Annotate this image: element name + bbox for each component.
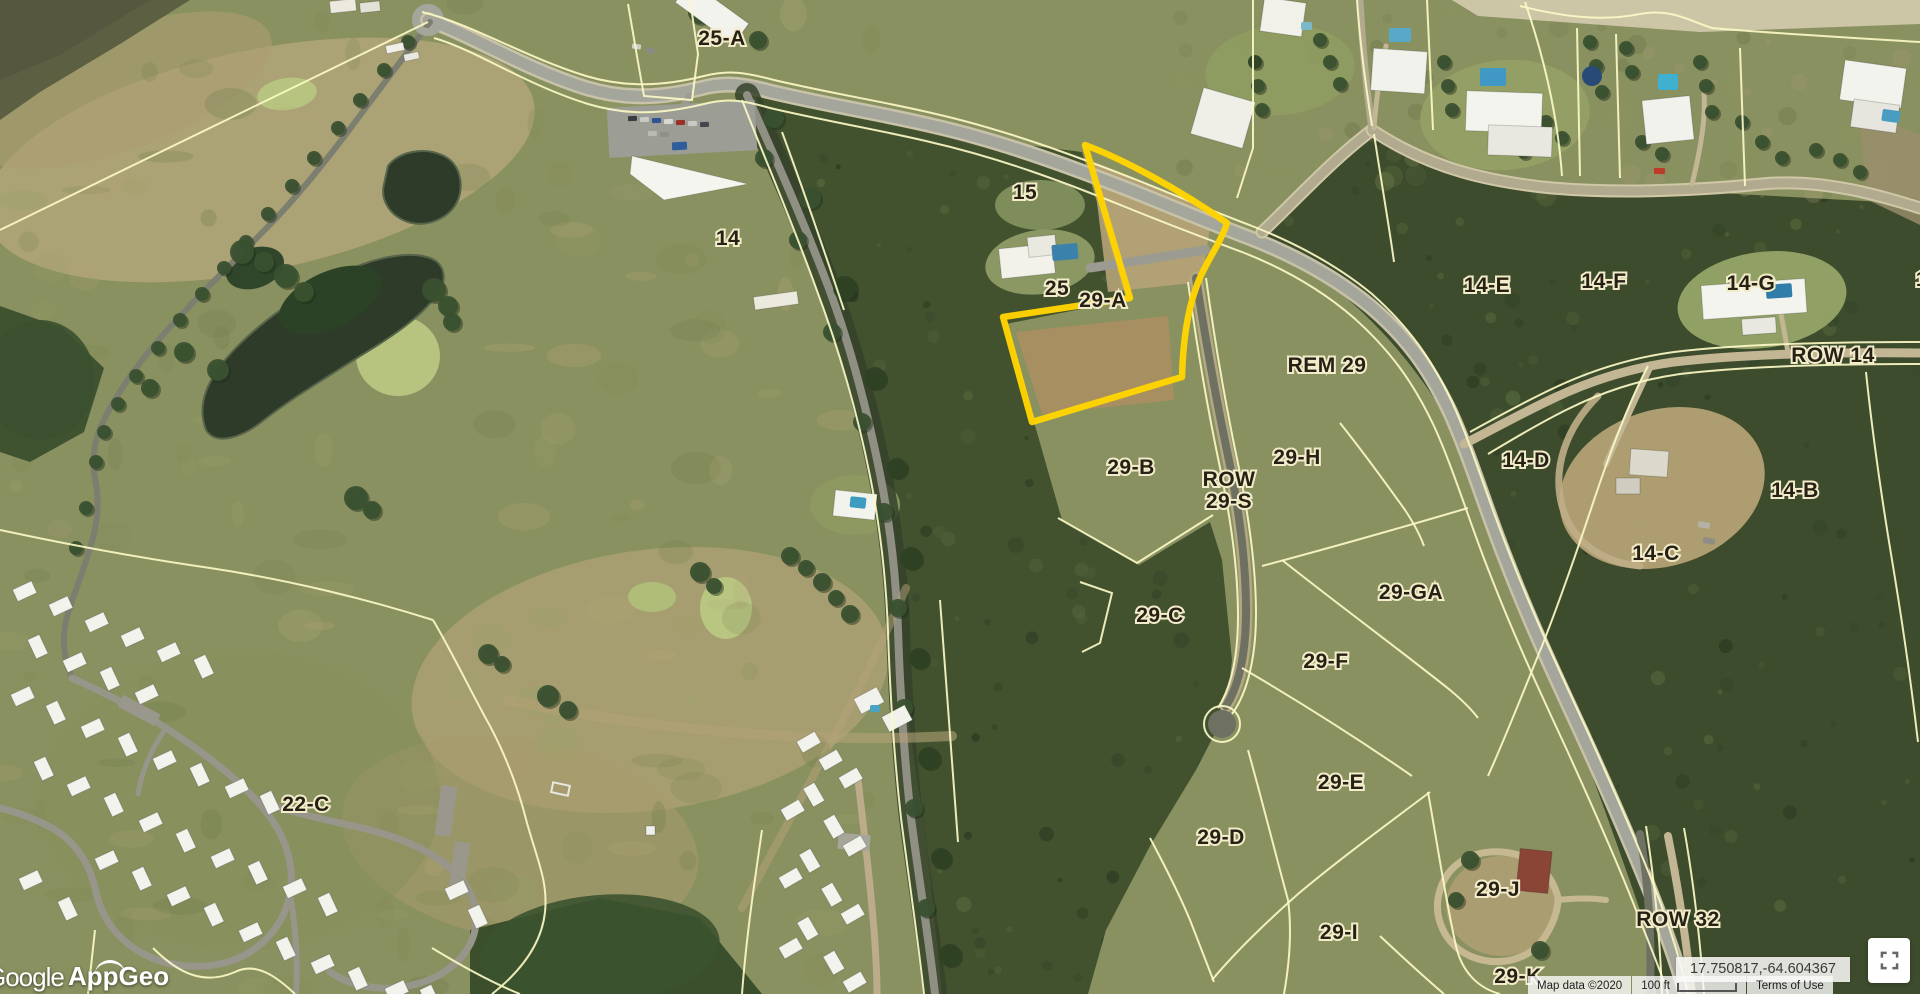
parcel-label: 14-C: [1632, 542, 1680, 565]
attribution-bar: Map data ©2020 100 ft Terms of Use: [1528, 976, 1833, 994]
parcel-label: 14: [716, 227, 740, 250]
appgeo-logo[interactable]: AppGeo: [68, 961, 169, 992]
satellite-map[interactable]: 25-A15142529-AREM 2914-E14-F14-GROW 1412…: [0, 0, 1920, 994]
map-data-attribution: Map data ©2020: [1528, 976, 1631, 994]
parcel-label: 29-H: [1273, 446, 1321, 469]
scale-label: 100 ft: [1641, 980, 1670, 992]
parcel-label: 29-GA: [1379, 581, 1443, 604]
parcel-label: 29-E: [1318, 771, 1364, 794]
google-logo[interactable]: Google: [0, 962, 64, 993]
parcel-label: 29-I: [1320, 921, 1358, 944]
parcel-label: 15: [1013, 181, 1037, 204]
scale-control: 100 ft: [1632, 976, 1746, 994]
parcel-label: ROW 14: [1791, 344, 1875, 367]
parcel-label: 29-J: [1476, 878, 1520, 901]
parcel-label: 14-B: [1771, 479, 1819, 502]
parcel-label: 1: [1916, 268, 1920, 291]
parcel-label: 29-C: [1136, 604, 1184, 627]
parcel-label: REM 29: [1288, 354, 1367, 377]
parcel-label: 25-A: [698, 27, 746, 50]
parcel-label: 25: [1045, 277, 1069, 300]
terms-of-use-link[interactable]: Terms of Use: [1747, 976, 1833, 994]
parcel-label: 29-A: [1079, 289, 1127, 312]
map-viewport[interactable]: 25-A15142529-AREM 2914-E14-F14-GROW 1412…: [0, 0, 1920, 994]
fullscreen-button[interactable]: [1868, 938, 1910, 983]
parcel-label: ROW: [1203, 468, 1256, 491]
parcel-label: 22-C: [282, 793, 330, 816]
fullscreen-icon: [1880, 951, 1899, 970]
parcel-label: 14-F: [1581, 270, 1626, 293]
parcel-label: 14-E: [1464, 274, 1510, 297]
parcel-label: 29-D: [1197, 826, 1245, 849]
parcel-label: 14-D: [1502, 449, 1550, 472]
parcel-label: 29-S: [1206, 490, 1252, 513]
scale-bar: [1677, 983, 1737, 992]
parcel-label: 14-G: [1727, 272, 1776, 295]
parcel-label: ROW 32: [1636, 908, 1720, 931]
parcel-label: 29-F: [1303, 650, 1348, 673]
parcel-label: 29-B: [1107, 456, 1155, 479]
